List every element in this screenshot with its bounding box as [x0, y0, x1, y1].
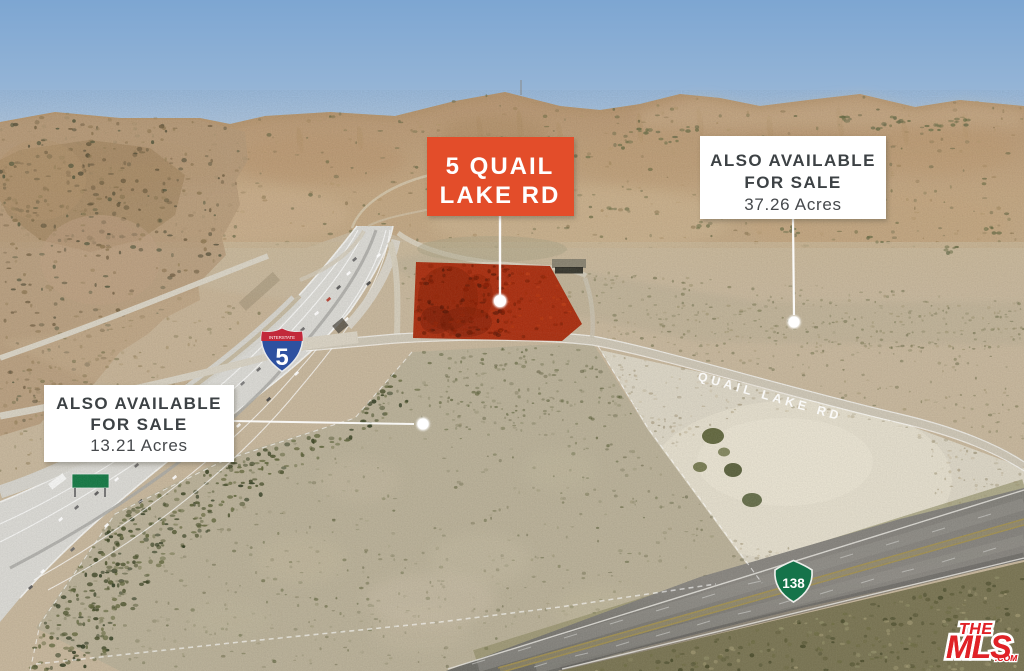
svg-text:INTERSTATE: INTERSTATE — [269, 335, 295, 340]
svg-text:138: 138 — [782, 576, 805, 591]
svg-text:13.21 Acres: 13.21 Acres — [90, 436, 187, 455]
svg-text:5: 5 — [275, 344, 288, 371]
svg-text:ALSO AVAILABLE: ALSO AVAILABLE — [710, 151, 876, 170]
svg-text:LAKE RD: LAKE RD — [440, 182, 561, 209]
svg-text:5 QUAIL: 5 QUAIL — [446, 153, 555, 180]
svg-text:.COM: .COM — [995, 653, 1018, 663]
svg-text:FOR SALE: FOR SALE — [744, 173, 841, 192]
svg-text:FOR SALE: FOR SALE — [90, 415, 187, 434]
svg-text:37.26 Acres: 37.26 Acres — [744, 195, 841, 214]
svg-text:ALSO AVAILABLE: ALSO AVAILABLE — [56, 394, 222, 413]
